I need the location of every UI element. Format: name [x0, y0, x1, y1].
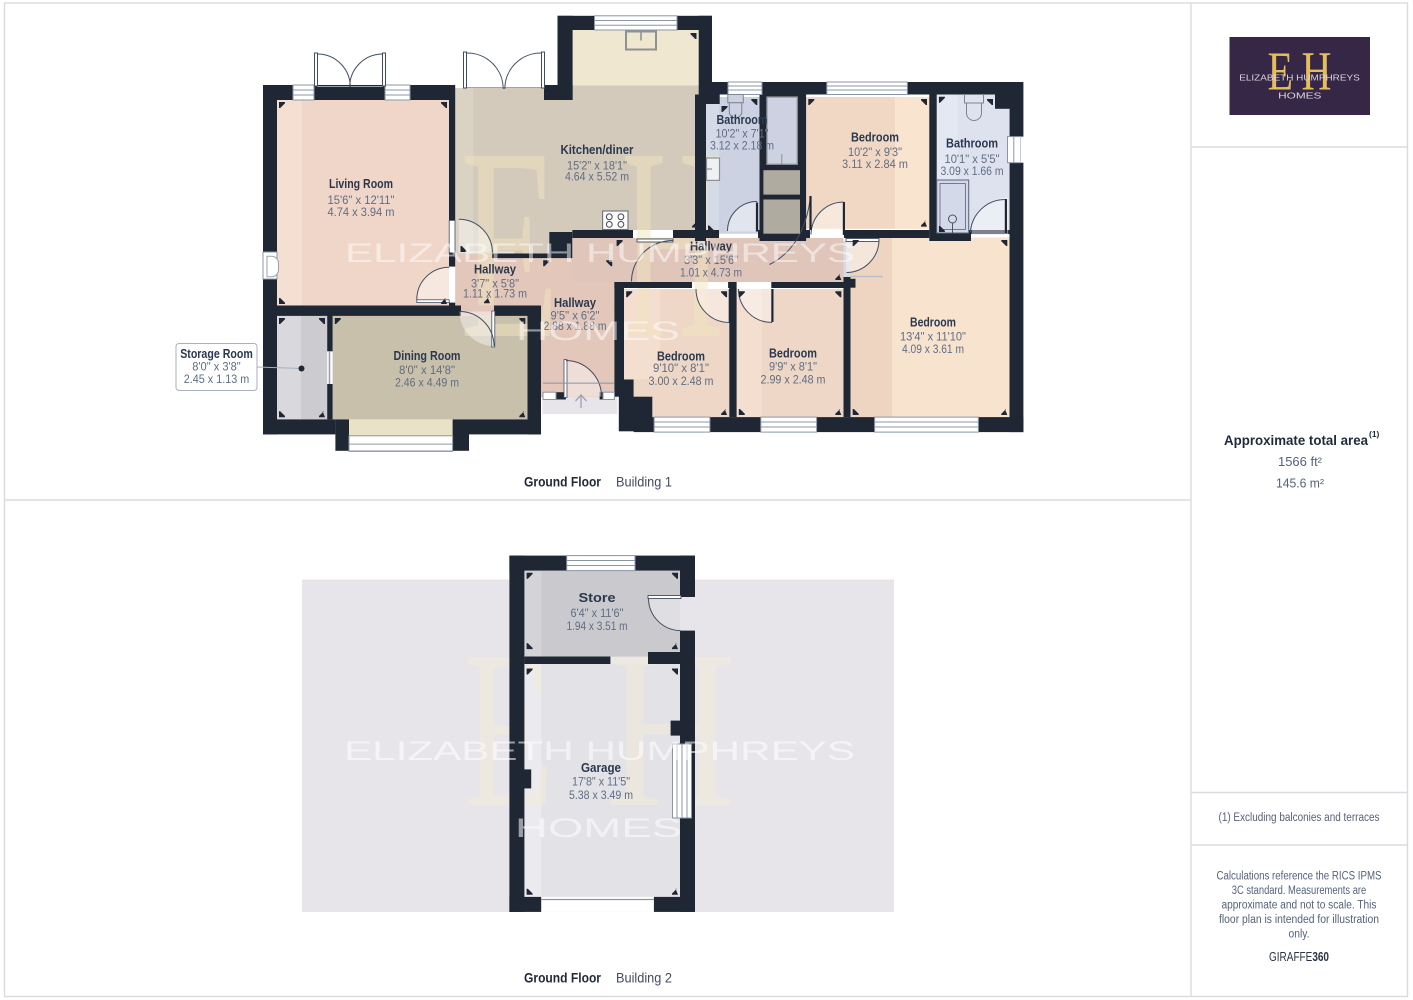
svg-text:Kitchen/diner: Kitchen/diner: [561, 142, 634, 157]
svg-text:Approximate total area: Approximate total area: [1224, 432, 1368, 448]
svg-text:Dining Room: Dining Room: [394, 348, 461, 363]
svg-text:4.64 x 5.52 m: 4.64 x 5.52 m: [565, 170, 629, 184]
svg-text:2.99 x 2.48 m: 2.99 x 2.48 m: [761, 373, 826, 387]
svg-text:5.38 x 3.49 m: 5.38 x 3.49 m: [569, 788, 633, 802]
svg-text:3.00 x 2.48 m: 3.00 x 2.48 m: [649, 374, 714, 388]
svg-text:Ground Floor: Ground Floor: [524, 970, 601, 986]
svg-text:2.46 x 4.49 m: 2.46 x 4.49 m: [395, 376, 459, 390]
svg-text:17'8" x 11'5": 17'8" x 11'5": [572, 775, 630, 789]
svg-text:(1): (1): [1369, 429, 1380, 439]
svg-text:1.11 x 1.73 m: 1.11 x 1.73 m: [463, 287, 527, 301]
svg-text:only.: only.: [1289, 929, 1310, 941]
svg-text:4.09 x 3.61 m: 4.09 x 3.61 m: [902, 342, 964, 356]
svg-text:9'9" x 8'1": 9'9" x 8'1": [769, 360, 817, 374]
svg-text:3.11 x 2.84 m: 3.11 x 2.84 m: [842, 157, 908, 171]
svg-text:9'10" x 8'1": 9'10" x 8'1": [653, 361, 709, 375]
svg-text:floor plan is intended for ill: floor plan is intended for illustration: [1219, 914, 1379, 926]
svg-text:Ground Floor: Ground Floor: [524, 474, 601, 490]
svg-text:ELIZABETH HUMPHREYS: ELIZABETH HUMPHREYS: [344, 736, 855, 766]
svg-text:Living Room: Living Room: [329, 176, 393, 191]
svg-text:(1) Excluding balconies and te: (1) Excluding balconies and terraces: [1219, 812, 1380, 824]
svg-text:1566 ft²: 1566 ft²: [1278, 454, 1323, 469]
svg-text:Bathroom: Bathroom: [946, 136, 998, 151]
svg-text:HOMES: HOMES: [516, 316, 680, 346]
svg-text:3.09 x 1.66 m: 3.09 x 1.66 m: [941, 164, 1004, 178]
svg-text:4.74 x 3.94 m: 4.74 x 3.94 m: [328, 205, 395, 219]
svg-text:Calculations reference the RIC: Calculations reference the RICS IPMS: [1217, 871, 1382, 883]
svg-text:3.12 x 2.18 m: 3.12 x 2.18 m: [710, 139, 774, 153]
svg-text:Bedroom: Bedroom: [910, 315, 956, 330]
svg-text:Store: Store: [579, 590, 616, 605]
svg-text:approximate and not to scale.: approximate and not to scale. This: [1222, 900, 1377, 912]
svg-text:GIRAFFE360: GIRAFFE360: [1269, 950, 1329, 964]
svg-text:Bedroom: Bedroom: [769, 346, 817, 361]
svg-text:Building 2: Building 2: [616, 970, 672, 986]
svg-text:ELIZABETH HUMPHREYS: ELIZABETH HUMPHREYS: [345, 238, 855, 268]
svg-text:145.6 m²: 145.6 m²: [1276, 476, 1325, 491]
svg-text:Bedroom: Bedroom: [851, 130, 899, 145]
svg-text:ELIZABETH HUMPHREYS: ELIZABETH HUMPHREYS: [1239, 74, 1360, 83]
svg-text:HOMES: HOMES: [1278, 90, 1322, 100]
svg-text:Bathroom: Bathroom: [717, 112, 768, 127]
svg-text:Building 1: Building 1: [616, 474, 672, 490]
svg-text:1.94 x 3.51 m: 1.94 x 3.51 m: [567, 619, 628, 633]
svg-text:3C standard. Measurements are: 3C standard. Measurements are: [1232, 885, 1367, 897]
svg-text:2.45 x 1.13 m: 2.45 x 1.13 m: [184, 372, 249, 386]
svg-text:6'4" x 11'6": 6'4" x 11'6": [571, 606, 624, 620]
svg-text:HOMES: HOMES: [515, 813, 682, 843]
